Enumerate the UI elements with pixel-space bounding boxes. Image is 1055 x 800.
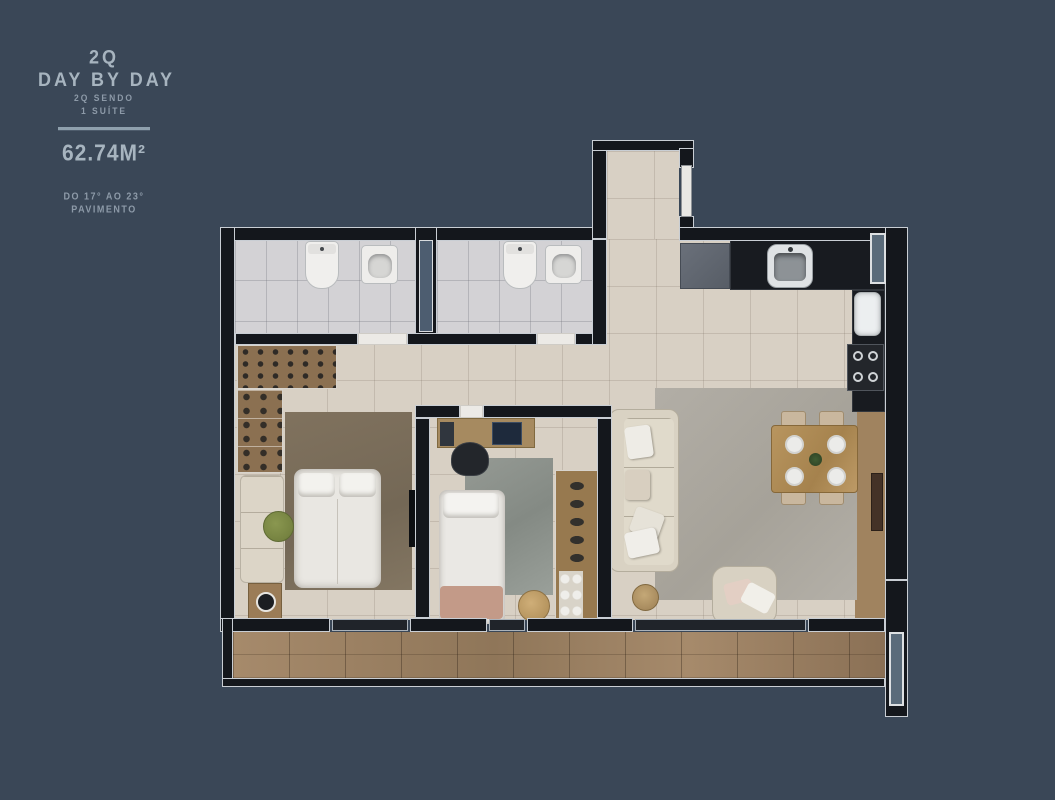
page-background: { "brand_panel": { "unit_type": "2Q", "u… [0, 0, 1055, 800]
armchair [712, 566, 777, 625]
duvet-crease [337, 499, 338, 584]
dining-table [771, 425, 858, 493]
hanging-clothes [560, 477, 594, 565]
burner [868, 351, 878, 361]
toilet-button [518, 247, 522, 251]
wall [592, 239, 607, 345]
unit-subtitle-line1: 2Q SENDO [38, 92, 170, 104]
faucet [788, 247, 793, 252]
sink-basin [774, 253, 806, 281]
unit-subtitle-line2: 1 SUÍTE [38, 105, 170, 117]
blanket [440, 586, 503, 619]
balcony-parapet [222, 618, 233, 687]
floor-range: DO 17° AO 23° PAVIMENTO [38, 190, 170, 216]
plate [785, 467, 804, 486]
floor-range-line1: DO 17° AO 23° [38, 190, 170, 203]
pillow [339, 473, 376, 497]
centerpiece-plant [809, 453, 822, 466]
wardrobe-shelf [559, 571, 583, 619]
bathroom-sink [545, 245, 582, 284]
balcony-deck [233, 632, 885, 678]
bathroom-sink [361, 245, 398, 284]
duct-shaft [419, 240, 433, 332]
wall [597, 418, 612, 618]
pouf-olive [263, 511, 294, 542]
side-window [889, 632, 904, 706]
pillow [298, 473, 335, 497]
sink-bowl [368, 254, 392, 278]
wall [407, 333, 537, 345]
wall [410, 618, 487, 632]
burner [853, 372, 863, 382]
wall [220, 618, 330, 632]
side-table [632, 584, 659, 611]
brand-panel: 2Q DAY BY DAY 2Q SENDO 1 SUÍTE 62.74M² D… [38, 46, 170, 216]
sink-bowl [552, 254, 576, 278]
wall [235, 333, 358, 345]
floor-range-line2: PAVIMENTO [38, 203, 170, 216]
kitchen-cabinet-gray [680, 243, 730, 289]
unit-name: DAY BY DAY [38, 69, 170, 92]
balcony-slider-living [635, 619, 806, 631]
toilet [503, 241, 537, 289]
record-player [256, 592, 276, 612]
entry-hall-floor [607, 151, 679, 239]
unit-area: 62.74M² [38, 141, 170, 167]
laptop [492, 422, 522, 445]
wall [808, 618, 885, 632]
plate [827, 467, 846, 486]
unit-type: 2Q [38, 46, 170, 69]
balcony-parapet [222, 678, 885, 687]
wall [527, 618, 633, 632]
wall [483, 405, 612, 418]
desk [437, 418, 535, 448]
burner [868, 372, 878, 382]
kitchen-window [870, 233, 886, 284]
door-threshold-bath2 [537, 333, 575, 345]
desk-chair [451, 442, 489, 476]
entry-door [681, 165, 692, 217]
toilet [305, 241, 339, 289]
door-threshold-bedroom2 [460, 405, 483, 418]
divider-line [58, 127, 150, 130]
wall [885, 227, 908, 580]
wall [220, 227, 235, 627]
cooktop [847, 344, 884, 391]
refrigerator [854, 292, 881, 336]
closet-shelf-left [237, 389, 283, 473]
toilet-button [320, 247, 324, 251]
wall [415, 418, 430, 618]
wall [220, 227, 595, 241]
plate [785, 435, 804, 454]
desk-shelf-item [440, 422, 454, 446]
balcony-slider-suite [332, 619, 408, 631]
pillow [443, 493, 499, 518]
closet-shelf-top [237, 345, 337, 389]
plate [827, 435, 846, 454]
wall [415, 405, 460, 418]
wardrobe [555, 470, 599, 622]
cushion [625, 470, 650, 500]
cushion [624, 424, 654, 459]
door-threshold-bath1 [358, 333, 407, 345]
single-bed [439, 490, 505, 624]
double-bed [294, 469, 381, 588]
sofa [609, 409, 679, 572]
wall [592, 140, 607, 239]
balcony-slider-bedroom2 [489, 619, 525, 631]
sideboard [871, 473, 883, 531]
nightstand [248, 583, 282, 619]
burner [853, 351, 863, 361]
floor-plan [215, 140, 910, 745]
kitchen-sink [767, 244, 813, 288]
